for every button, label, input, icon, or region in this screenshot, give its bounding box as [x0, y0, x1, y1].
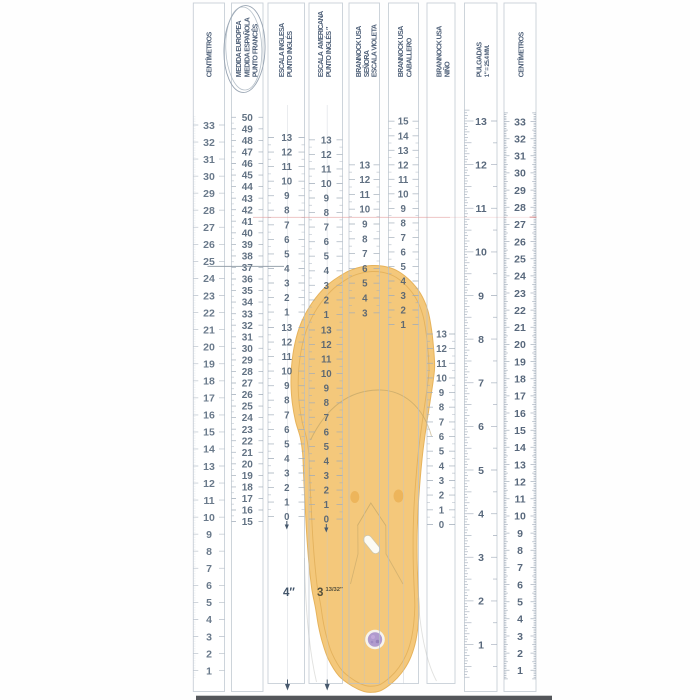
svg-text:7: 7	[284, 410, 289, 421]
svg-text:7: 7	[517, 562, 523, 574]
svg-text:PUNTO INGLÉS: PUNTO INGLÉS	[285, 31, 294, 78]
svg-text:12: 12	[475, 159, 487, 171]
svg-text:50: 50	[242, 113, 254, 124]
svg-text:13: 13	[203, 461, 215, 473]
svg-text:35: 35	[242, 286, 254, 297]
svg-text:5: 5	[284, 439, 290, 450]
svg-text:6: 6	[284, 235, 290, 246]
svg-text:4: 4	[324, 456, 330, 467]
svg-text:7: 7	[324, 223, 329, 234]
svg-text:7: 7	[324, 413, 329, 424]
svg-text:21: 21	[203, 324, 215, 336]
svg-text:23: 23	[203, 290, 215, 302]
svg-text:ESCALA INGLESA: ESCALA INGLESA	[279, 23, 286, 77]
svg-text:21: 21	[514, 322, 526, 334]
svg-text:9: 9	[284, 191, 290, 202]
svg-text:28: 28	[203, 205, 215, 217]
svg-text:8: 8	[206, 546, 212, 558]
svg-text:5: 5	[517, 597, 523, 609]
svg-text:28: 28	[242, 367, 254, 378]
svg-text:13: 13	[475, 116, 487, 128]
svg-text:38: 38	[242, 252, 254, 263]
svg-text:SEÑORA: SEÑORA	[362, 50, 371, 77]
svg-text:30: 30	[514, 168, 526, 180]
svg-text:9: 9	[324, 194, 330, 205]
svg-text:12: 12	[321, 340, 332, 351]
svg-text:9: 9	[478, 290, 484, 302]
svg-text:1: 1	[324, 310, 330, 321]
svg-text:9: 9	[439, 388, 445, 399]
svg-text:16: 16	[514, 408, 526, 420]
svg-text:1: 1	[478, 639, 484, 651]
svg-text:29: 29	[203, 188, 215, 200]
svg-text:6: 6	[324, 237, 330, 248]
svg-text:13: 13	[321, 326, 332, 337]
svg-text:3: 3	[206, 631, 212, 643]
svg-text:4″: 4″	[283, 587, 295, 599]
svg-text:15: 15	[398, 117, 409, 128]
svg-text:2: 2	[401, 306, 406, 317]
svg-text:12: 12	[281, 148, 292, 159]
svg-text:10: 10	[398, 189, 409, 200]
svg-text:13: 13	[281, 323, 292, 334]
svg-text:3: 3	[324, 281, 330, 292]
svg-text:24: 24	[242, 413, 254, 424]
svg-text:12: 12	[398, 160, 409, 171]
svg-text:30: 30	[242, 344, 254, 355]
svg-text:2: 2	[284, 483, 289, 494]
svg-text:PUNTO INGLÉS ″: PUNTO INGLÉS ″	[324, 26, 333, 77]
svg-text:1: 1	[401, 320, 407, 331]
svg-text:13/32″: 13/32″	[326, 587, 344, 593]
svg-text:10: 10	[359, 205, 370, 216]
svg-text:11: 11	[321, 355, 332, 366]
svg-text:11: 11	[203, 495, 214, 507]
svg-text:3: 3	[439, 476, 445, 487]
svg-text:4: 4	[478, 509, 484, 521]
svg-text:10: 10	[321, 369, 332, 380]
svg-text:27: 27	[514, 219, 526, 231]
svg-text:1: 1	[284, 498, 290, 509]
svg-text:16: 16	[203, 410, 215, 422]
svg-text:2: 2	[439, 491, 444, 502]
svg-text:7: 7	[284, 220, 289, 231]
svg-text:31: 31	[242, 332, 254, 343]
svg-text:2: 2	[324, 295, 329, 306]
svg-text:15: 15	[203, 427, 215, 439]
svg-text:12: 12	[436, 344, 447, 355]
svg-text:8: 8	[284, 396, 290, 407]
svg-text:10: 10	[281, 367, 292, 378]
svg-text:1: 1	[284, 308, 290, 319]
svg-text:8: 8	[478, 334, 484, 346]
svg-text:4: 4	[206, 614, 212, 626]
svg-text:12: 12	[321, 150, 332, 161]
svg-text:48: 48	[242, 136, 254, 147]
svg-text:20: 20	[242, 459, 254, 470]
svg-text:8: 8	[324, 398, 330, 409]
svg-text:9: 9	[324, 384, 330, 395]
svg-text:9: 9	[284, 381, 290, 392]
svg-text:4: 4	[401, 277, 407, 288]
svg-text:7: 7	[401, 233, 406, 244]
svg-text:PULGADAS: PULGADAS	[476, 41, 483, 77]
svg-text:34: 34	[242, 298, 254, 309]
svg-text:2: 2	[517, 648, 523, 660]
svg-text:4: 4	[517, 614, 523, 626]
svg-text:7: 7	[362, 249, 367, 260]
svg-text:2: 2	[206, 648, 212, 660]
svg-text:13: 13	[281, 133, 292, 144]
svg-text:2: 2	[478, 596, 484, 608]
svg-text:1: 1	[324, 500, 330, 511]
svg-text:27: 27	[242, 379, 254, 390]
svg-text:9: 9	[401, 204, 407, 215]
svg-text:3: 3	[324, 471, 330, 482]
svg-text:22: 22	[242, 436, 254, 447]
svg-text:14: 14	[203, 444, 215, 456]
svg-text:5: 5	[206, 597, 212, 609]
svg-text:5: 5	[284, 249, 290, 260]
svg-text:22: 22	[514, 305, 526, 317]
svg-text:1: 1	[439, 505, 445, 516]
svg-text:3: 3	[401, 291, 407, 302]
svg-text:10: 10	[281, 177, 292, 188]
svg-text:3: 3	[284, 469, 290, 480]
svg-text:13: 13	[359, 160, 370, 171]
svg-text:3: 3	[284, 279, 290, 290]
svg-text:30: 30	[203, 171, 215, 183]
svg-text:MEDIDA ESPAÑOLA: MEDIDA ESPAÑOLA	[242, 17, 251, 77]
svg-text:6: 6	[324, 427, 330, 438]
svg-text:5: 5	[324, 252, 330, 263]
svg-text:8: 8	[517, 545, 523, 557]
svg-text:CABALLERO: CABALLERO	[407, 37, 414, 77]
svg-text:10: 10	[514, 511, 526, 523]
svg-text:11: 11	[475, 203, 486, 215]
svg-text:27: 27	[203, 222, 215, 234]
svg-text:5: 5	[324, 442, 330, 453]
svg-text:17: 17	[242, 494, 254, 505]
svg-text:5: 5	[401, 262, 407, 273]
svg-text:9: 9	[362, 220, 368, 231]
svg-text:17: 17	[203, 393, 215, 405]
svg-text:8: 8	[362, 234, 368, 245]
svg-text:26: 26	[514, 236, 526, 248]
svg-text:43: 43	[242, 194, 254, 205]
svg-text:CENTÍMETROS: CENTÍMETROS	[205, 31, 214, 77]
svg-text:9: 9	[517, 528, 523, 540]
svg-text:12: 12	[203, 478, 215, 490]
svg-text:13: 13	[514, 459, 526, 471]
svg-text:0: 0	[324, 515, 329, 526]
svg-text:6: 6	[206, 580, 212, 592]
svg-text:7: 7	[206, 563, 212, 575]
svg-text:ESCALA AMERICANA: ESCALA AMERICANA	[318, 11, 325, 77]
svg-text:4: 4	[439, 461, 445, 472]
svg-text:23: 23	[242, 425, 254, 436]
svg-text:CENTÍMETROS: CENTÍMETROS	[516, 31, 525, 77]
svg-text:10: 10	[321, 179, 332, 190]
svg-text:21: 21	[242, 448, 254, 459]
svg-text:41: 41	[242, 217, 254, 228]
svg-text:20: 20	[514, 339, 526, 351]
svg-text:26: 26	[242, 390, 254, 401]
svg-text:10: 10	[436, 373, 447, 384]
svg-text:13: 13	[321, 135, 332, 146]
svg-text:25: 25	[242, 402, 254, 413]
svg-text:12: 12	[281, 338, 292, 349]
svg-text:11: 11	[282, 352, 293, 363]
svg-text:6: 6	[284, 425, 290, 436]
svg-text:BRANNOCK USA: BRANNOCK USA	[398, 26, 405, 77]
svg-text:39: 39	[242, 240, 254, 251]
svg-text:32: 32	[242, 321, 254, 332]
svg-text:14: 14	[398, 131, 409, 142]
svg-text:33: 33	[514, 116, 526, 128]
svg-text:11: 11	[282, 162, 293, 173]
svg-text:13: 13	[398, 146, 409, 157]
svg-text:5: 5	[439, 447, 445, 458]
svg-text:2: 2	[284, 293, 289, 304]
svg-text:11: 11	[436, 359, 447, 370]
svg-text:12: 12	[359, 175, 370, 186]
svg-text:15: 15	[514, 425, 526, 437]
svg-text:11: 11	[514, 494, 525, 506]
svg-text:32: 32	[514, 133, 526, 145]
svg-text:13: 13	[436, 330, 447, 341]
svg-text:5: 5	[362, 279, 368, 290]
svg-text:3: 3	[362, 308, 368, 319]
svg-text:24: 24	[203, 273, 215, 285]
svg-text:29: 29	[514, 185, 526, 197]
svg-text:PUNTO FRANCÉS: PUNTO FRANCÉS	[251, 23, 260, 77]
svg-text:26: 26	[203, 239, 215, 251]
svg-text:0: 0	[439, 520, 444, 531]
svg-text:47: 47	[242, 148, 254, 159]
svg-text:3: 3	[478, 552, 484, 564]
svg-text:10: 10	[475, 247, 487, 259]
svg-text:29: 29	[242, 356, 254, 367]
svg-text:18: 18	[203, 376, 215, 388]
svg-text:33: 33	[203, 120, 215, 132]
svg-text:28: 28	[514, 202, 526, 214]
svg-text:32: 32	[203, 137, 215, 149]
svg-text:19: 19	[242, 471, 254, 482]
svg-text:12: 12	[514, 476, 526, 488]
svg-text:49: 49	[242, 124, 254, 135]
svg-text:19: 19	[514, 356, 526, 368]
svg-text:16: 16	[242, 506, 254, 517]
svg-text:ESCALA VIOLETA: ESCALA VIOLETA	[372, 24, 379, 77]
svg-text:4: 4	[284, 454, 290, 465]
svg-text:5: 5	[478, 465, 484, 477]
svg-text:10: 10	[203, 512, 215, 524]
svg-text:33: 33	[242, 309, 254, 320]
svg-text:44: 44	[242, 182, 254, 193]
svg-text:8: 8	[439, 403, 445, 414]
svg-text:11: 11	[321, 164, 332, 175]
svg-text:6: 6	[517, 579, 523, 591]
svg-text:BRANNOCK USA: BRANNOCK USA	[436, 26, 443, 77]
svg-text:BRANNOCK USA: BRANNOCK USA	[356, 26, 363, 77]
svg-text:18: 18	[514, 374, 526, 386]
svg-text:22: 22	[203, 307, 215, 319]
svg-text:40: 40	[242, 228, 254, 239]
svg-text:9: 9	[206, 529, 212, 541]
svg-text:20: 20	[203, 341, 215, 353]
svg-text:42: 42	[242, 205, 254, 216]
svg-text:4: 4	[362, 294, 368, 305]
svg-text:6: 6	[401, 247, 407, 258]
svg-text:45: 45	[242, 171, 254, 182]
svg-text:8: 8	[401, 218, 407, 229]
svg-text:6: 6	[439, 432, 445, 443]
svg-text:6: 6	[478, 421, 484, 433]
svg-text:23: 23	[514, 288, 526, 300]
svg-text:NIÑO: NIÑO	[442, 61, 451, 77]
svg-text:11: 11	[398, 175, 409, 186]
svg-text:15: 15	[242, 517, 254, 528]
svg-text:25: 25	[514, 254, 526, 266]
svg-text:4: 4	[284, 264, 290, 275]
svg-text:1: 1	[206, 665, 212, 677]
svg-text:36: 36	[242, 275, 254, 286]
svg-text:37: 37	[242, 263, 254, 274]
svg-text:24: 24	[514, 271, 526, 283]
svg-text:46: 46	[242, 159, 254, 170]
svg-text:7: 7	[478, 378, 484, 390]
svg-text:7: 7	[439, 417, 444, 428]
svg-text:4: 4	[324, 266, 330, 277]
svg-text:3: 3	[517, 631, 523, 643]
svg-text:2: 2	[324, 486, 329, 497]
svg-text:11: 11	[360, 190, 371, 201]
svg-text:8: 8	[284, 206, 290, 217]
svg-text:3: 3	[317, 587, 323, 599]
svg-text:MEDIDA EUROPEA: MEDIDA EUROPEA	[236, 20, 243, 77]
svg-text:31: 31	[203, 154, 215, 166]
svg-text:1: 1	[517, 665, 523, 677]
svg-text:31: 31	[514, 151, 526, 163]
svg-text:19: 19	[203, 359, 215, 371]
svg-text:17: 17	[514, 391, 526, 403]
svg-text:14: 14	[514, 442, 526, 454]
svg-text:18: 18	[242, 483, 254, 494]
svg-text:6: 6	[362, 264, 368, 275]
svg-text:1″ = 25.4 MM.: 1″ = 25.4 MM.	[484, 44, 491, 77]
